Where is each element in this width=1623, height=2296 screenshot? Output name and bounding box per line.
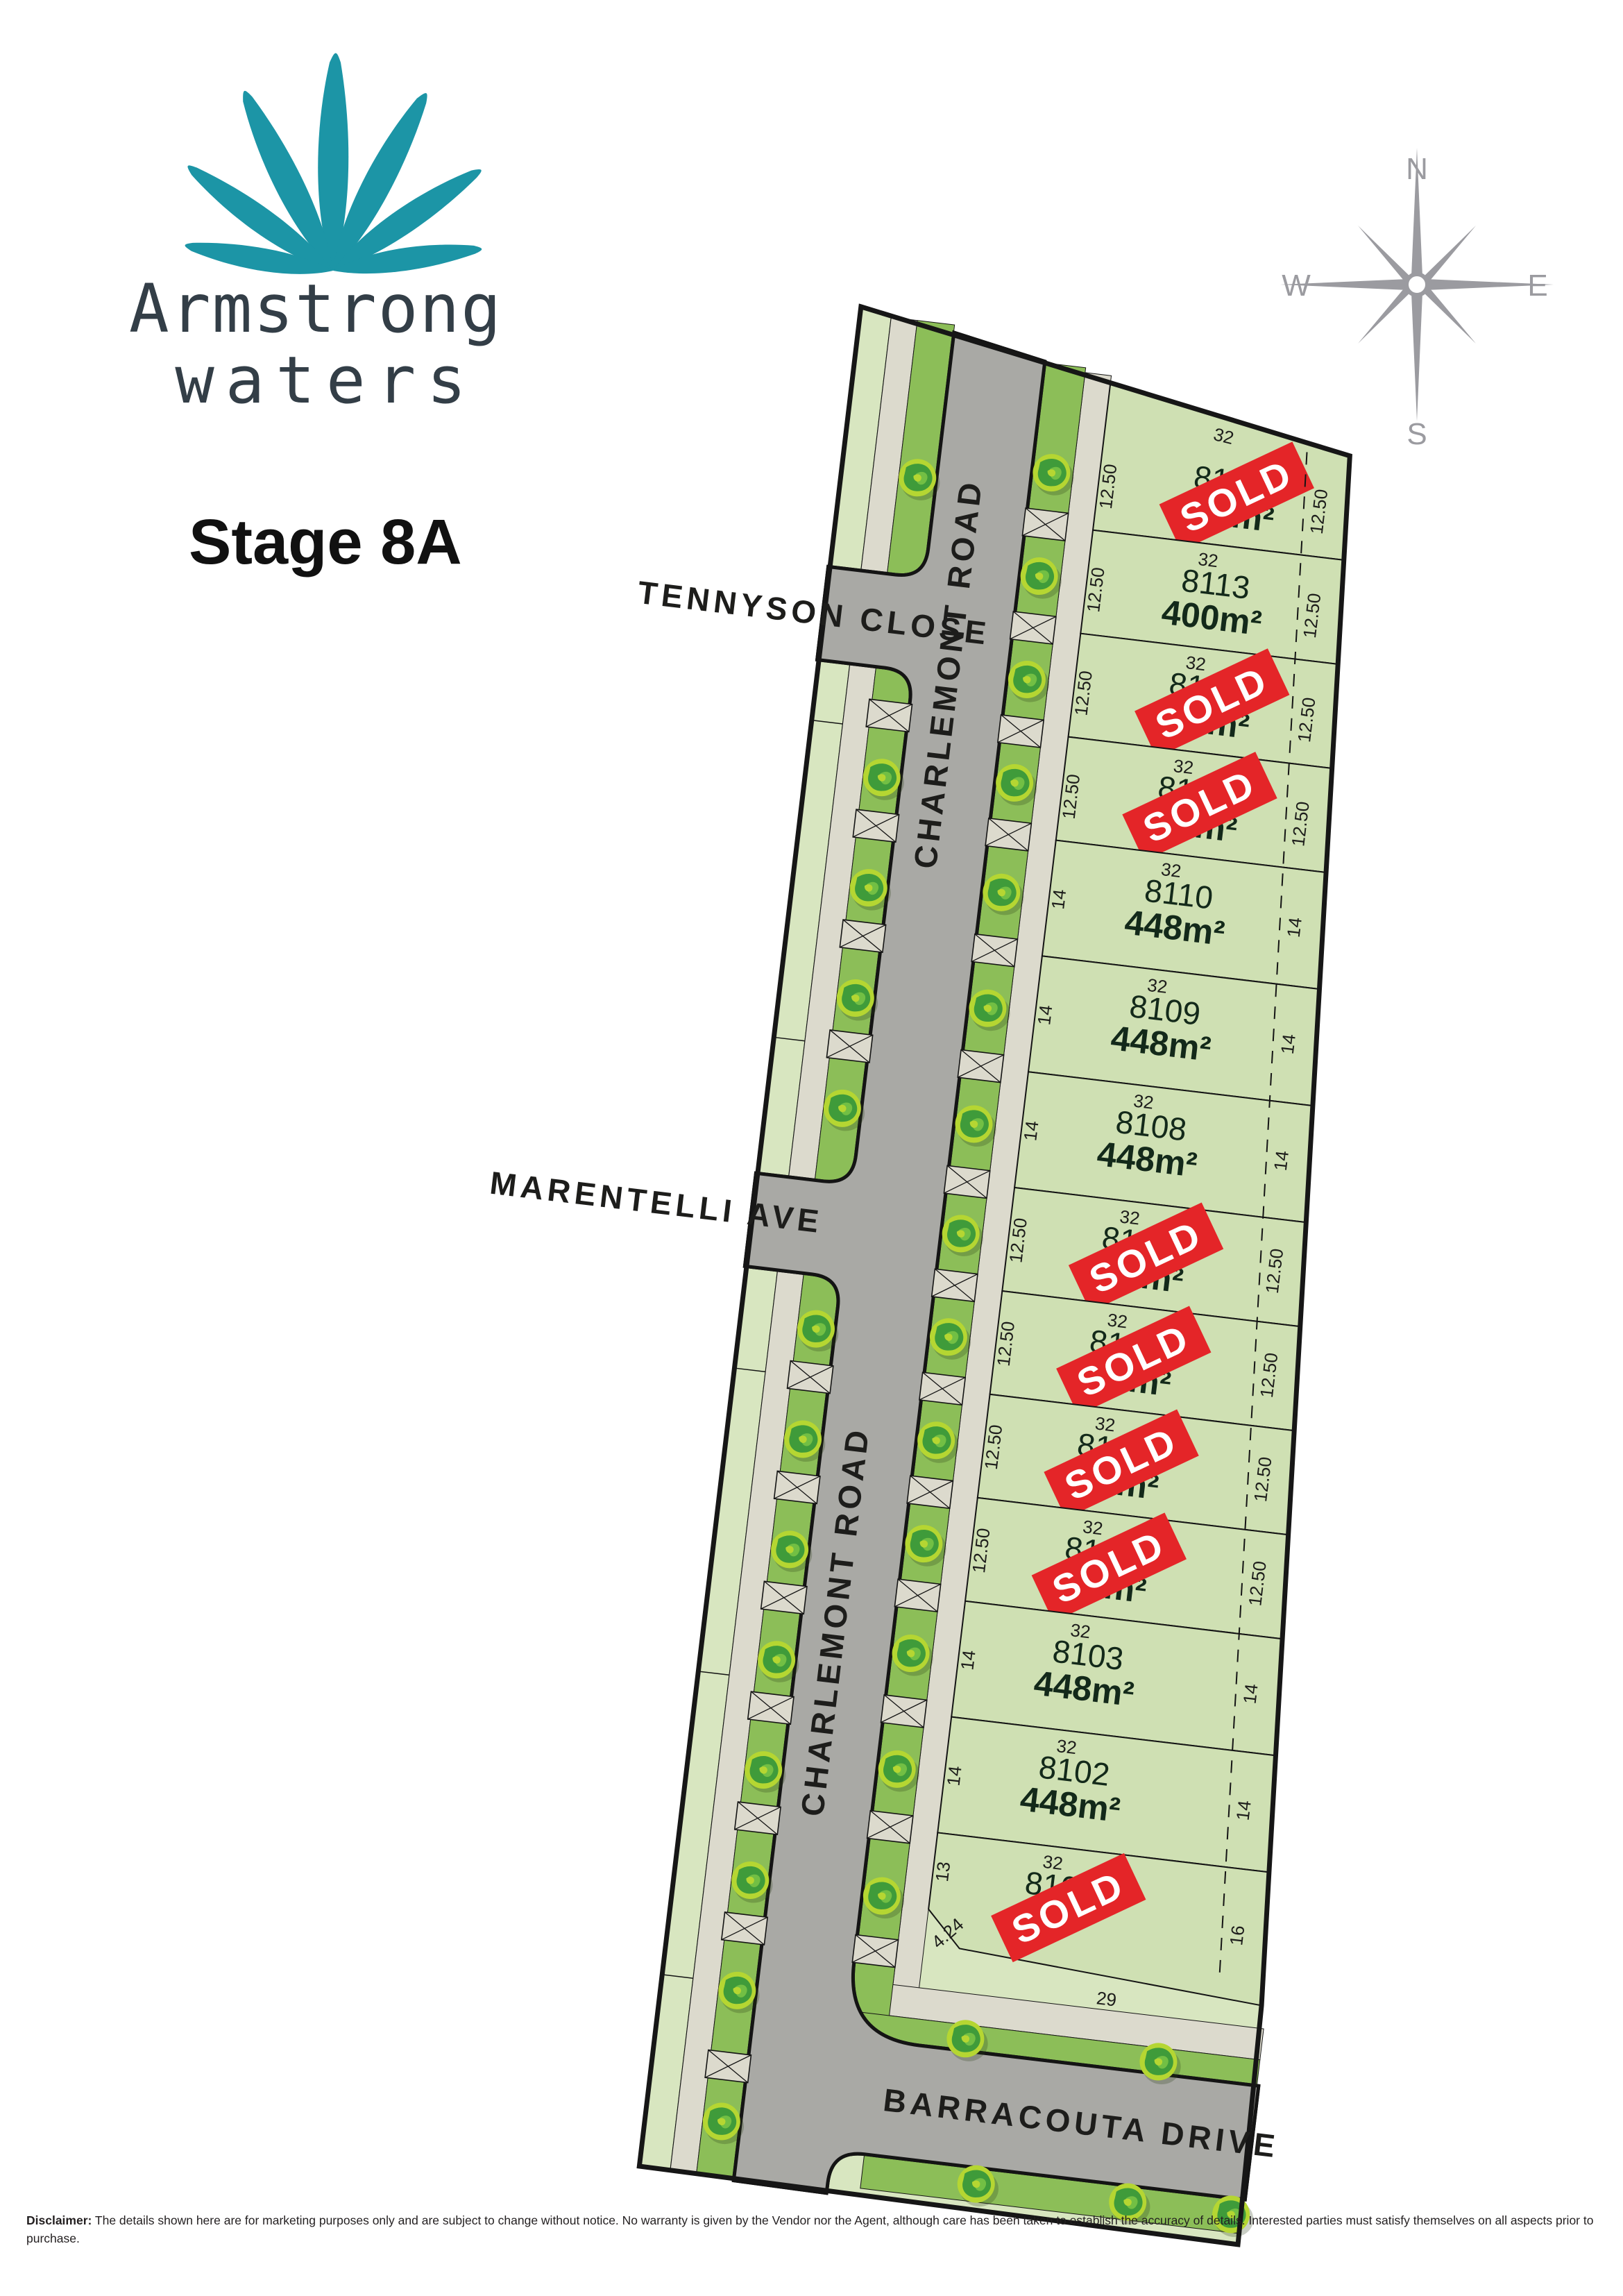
- brand-name-line2: waters: [175, 343, 477, 419]
- compass-point-south: [1411, 283, 1422, 421]
- lot-right-dim: 16: [1225, 1924, 1248, 1946]
- compass-label-s: S: [1407, 417, 1427, 451]
- compass-label-n: N: [1406, 152, 1428, 186]
- lot-right-dim: 14: [1270, 1149, 1293, 1172]
- plan-canvas: 32 8114 400m² 12.50 12.50 SOLD 32 8113 4…: [0, 0, 1623, 2296]
- disclaimer-title: Disclaimer:: [26, 2213, 92, 2227]
- lot-right-dim: 14: [1239, 1682, 1262, 1705]
- lot-left-dim: 14: [1033, 1004, 1056, 1026]
- lot-left-dim: 14: [956, 1649, 979, 1671]
- brand-name-line1: Armstrong: [129, 270, 502, 348]
- lot-bottom-dim: 29: [1095, 1987, 1117, 2010]
- stage-title: Stage 8A: [189, 507, 462, 577]
- lot-left-dim: 14: [943, 1765, 966, 1787]
- compass-label-w: W: [1282, 269, 1311, 303]
- lot-right-dim: 14: [1283, 916, 1306, 938]
- compass-hub: [1407, 274, 1427, 295]
- disclaimer: Disclaimer: The details shown here are f…: [26, 2211, 1597, 2248]
- sales-plan-page: 32 8114 400m² 12.50 12.50 SOLD 32 8113 4…: [0, 0, 1623, 2296]
- brand-logo: Armstrong waters Stage 8A: [129, 53, 502, 578]
- compass-label-e: E: [1527, 269, 1547, 303]
- lot-right-dim: 14: [1277, 1033, 1300, 1055]
- lot-left-dim: 13: [931, 1861, 954, 1883]
- disclaimer-text: The details shown here are for marketing…: [26, 2213, 1593, 2245]
- lot-left-dim: 14: [1047, 888, 1070, 911]
- lot-left-dim: 14: [1019, 1120, 1042, 1142]
- lot-right-dim: 14: [1232, 1799, 1255, 1821]
- compass-rose: N S W E: [1280, 148, 1554, 451]
- site-plan: 32 8114 400m² 12.50 12.50 SOLD 32 8113 4…: [376, 276, 1490, 2248]
- lotus-icon: [179, 53, 487, 282]
